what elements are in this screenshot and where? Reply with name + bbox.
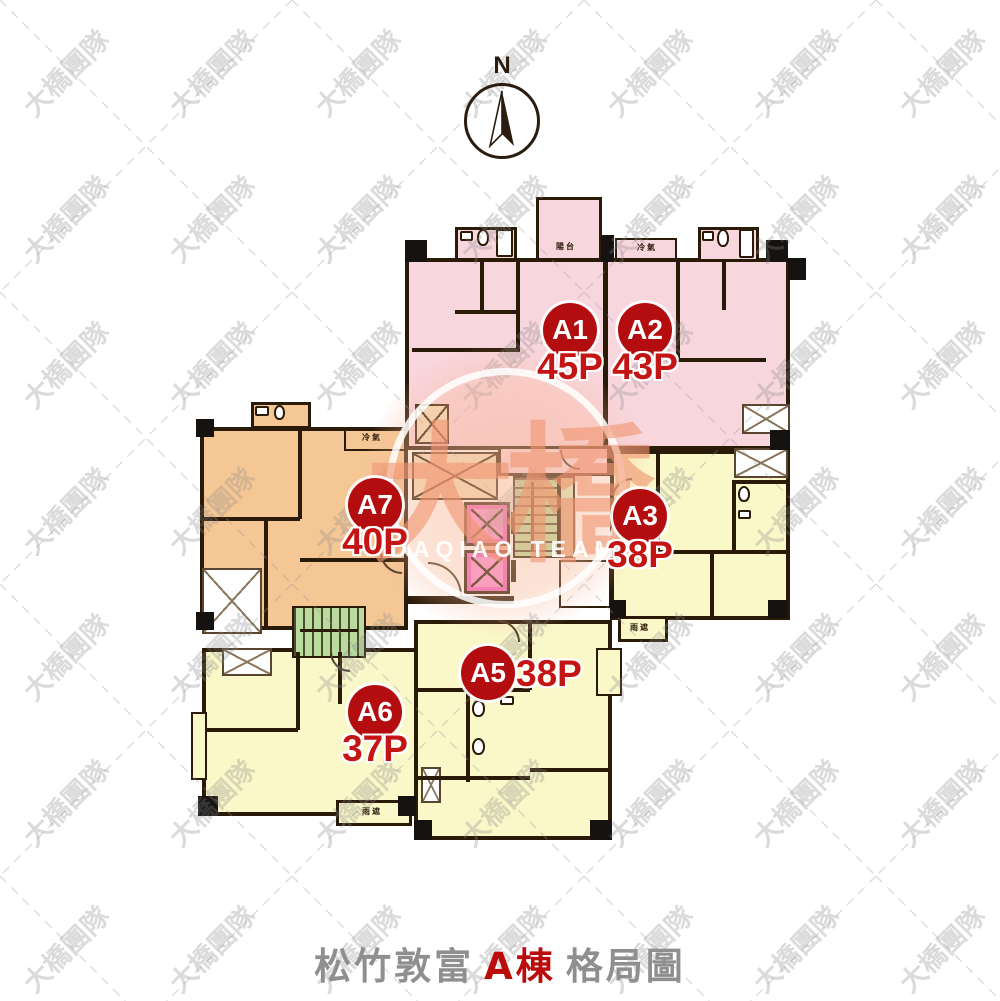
wall: [298, 431, 302, 519]
shower-fixture: [739, 229, 754, 258]
unit-size-a2: 43P: [590, 346, 700, 388]
toilet-fixture: [738, 486, 750, 502]
wall: [412, 348, 518, 352]
column-block: [590, 820, 612, 840]
duct-shaft-main: [412, 452, 498, 500]
shaft-hatch-a5-bottom: [421, 767, 441, 803]
column-block: [198, 796, 218, 816]
column-block: [610, 600, 626, 618]
title-project-name: 松竹敦富: [314, 936, 474, 990]
compass-icon: [464, 83, 540, 159]
wall: [264, 521, 268, 628]
door-arc: [428, 562, 462, 596]
core-bottom-wall: [408, 596, 514, 604]
side-bump-a6: [191, 712, 207, 780]
wall: [466, 692, 470, 782]
unit-size-a3: 38P: [585, 534, 695, 576]
compass-north-label: N: [468, 52, 536, 80]
elevator-1: [464, 502, 510, 546]
column-block: [398, 796, 416, 816]
staircase-core: [513, 476, 559, 558]
wall: [204, 517, 300, 521]
column-block: [196, 612, 214, 630]
sink-fixture: [702, 231, 714, 241]
wall: [455, 310, 517, 314]
staircase-lower-rail: [300, 629, 358, 632]
column-block: [601, 235, 614, 262]
wall: [732, 480, 788, 484]
wall: [732, 480, 736, 552]
unit-size-a7: 40P: [320, 521, 430, 563]
staircase-lower: [292, 606, 366, 658]
elevator-2: [464, 550, 510, 594]
rain-shelter-hatch-right-2: [734, 448, 788, 478]
balcony-label: 陽台: [556, 243, 576, 251]
elevator-rail-2: [511, 560, 516, 582]
compass-needle-icon: [467, 86, 537, 156]
entry-corridor-area: [498, 446, 610, 476]
title-suffix: 格局圖: [566, 936, 686, 990]
wall: [722, 262, 726, 310]
column-block: [196, 419, 214, 437]
column-block: [766, 240, 788, 262]
sink-fixture: [738, 510, 751, 519]
wall: [480, 262, 484, 312]
staircase-core-rail: [531, 482, 534, 552]
shower-fixture: [496, 229, 513, 257]
column-block: [405, 240, 427, 262]
page-title: 松竹敦富 A棟 格局圖: [0, 936, 1000, 990]
column-block: [788, 258, 806, 280]
toilet-fixture: [274, 405, 285, 420]
elevator-1-cab: [471, 509, 503, 539]
wall: [710, 552, 714, 618]
toilet-fixture: [472, 700, 485, 717]
sink-fixture: [500, 696, 514, 705]
wall: [296, 652, 300, 730]
balcony-box: [536, 197, 602, 261]
column-block: [770, 430, 790, 450]
unit-badge-a5: A5: [461, 646, 515, 700]
sink-fixture: [460, 231, 473, 241]
wall: [530, 768, 610, 772]
column-block: [414, 820, 432, 840]
rain-cover-label: 雨遮: [630, 624, 650, 632]
sink-fixture: [255, 406, 269, 416]
wall: [516, 262, 520, 352]
rain-cover-label: 雨遮: [362, 808, 382, 816]
ac-label: 冷氣: [362, 434, 382, 442]
floorplan-page: 陽台 冷氣 冷氣 雨遮 雨遮 大橋團隊 大橋團隊 大橋團隊 大橋團隊 大橋 DA…: [0, 0, 1000, 1001]
unit-size-a5: 38P: [516, 653, 626, 695]
duct-shaft-small: [415, 404, 449, 444]
title-building-name: A棟: [484, 936, 556, 990]
staircase-landing: [559, 476, 575, 558]
shaft-hatch-a6-top: [222, 648, 272, 676]
toilet-fixture: [477, 229, 489, 246]
unit-size-a6: 37P: [320, 728, 430, 770]
elevator-2-cab: [471, 557, 503, 587]
wall: [418, 776, 530, 780]
column-block: [768, 600, 788, 618]
ac-label: 冷氣: [637, 244, 657, 252]
toilet-fixture: [717, 229, 729, 247]
wall: [206, 728, 298, 732]
toilet-fixture: [472, 738, 485, 755]
